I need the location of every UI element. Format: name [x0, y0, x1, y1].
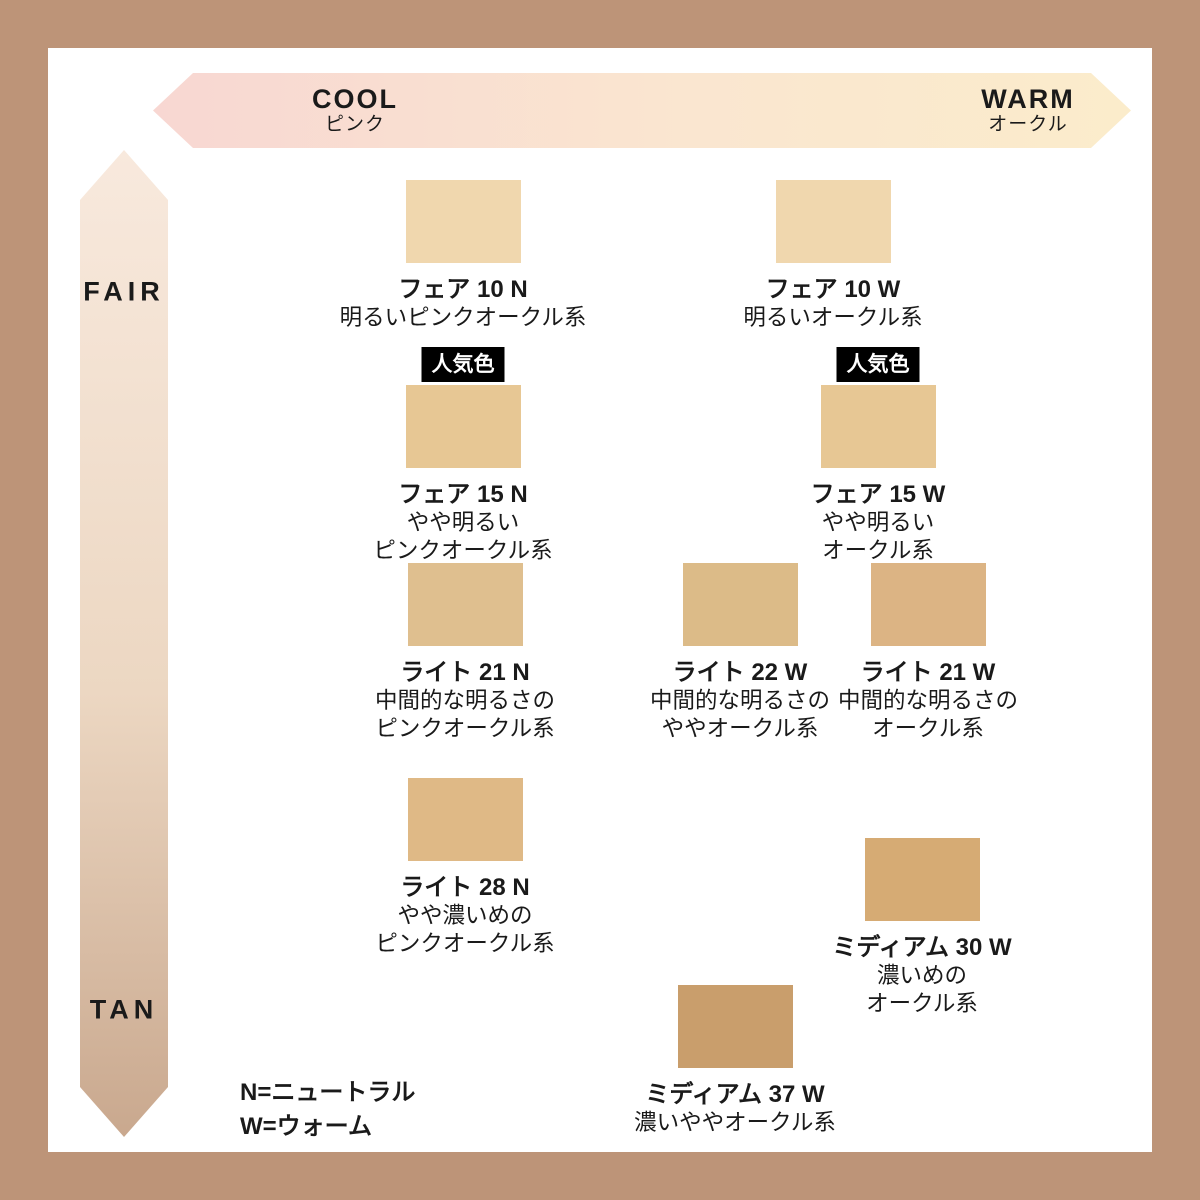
shade-swatches-layer: フェア 10 N明るいピンクオークル系フェア 10 W明るいオークル系人気色フェ… — [0, 0, 1200, 1200]
shade-name: ライト 28 N — [305, 874, 625, 902]
color-swatch — [821, 385, 936, 468]
color-swatch — [865, 838, 980, 921]
shade-description: やや濃いめのピンクオークル系 — [305, 902, 625, 958]
shade-item-8: ライト 28 Nやや濃いめのピンクオークル系 — [305, 778, 625, 958]
shade-description: 明るいピンクオークル系 — [303, 304, 623, 332]
shade-item-10: ミディアム 37 W濃いややオークル系 — [575, 985, 895, 1137]
shade-description: やや明るいオークル系 — [718, 509, 1038, 565]
legend-line-neutral: N=ニュートラル — [240, 1076, 415, 1110]
shade-chart: COOL ピンク WARM オークル FAIR TAN フェア 10 N明るいピ… — [48, 48, 1152, 1152]
shade-item-2: フェア 10 W明るいオークル系 — [673, 180, 993, 332]
color-swatch — [408, 778, 523, 861]
color-swatch — [406, 385, 521, 468]
legend-line-warm: W=ウォーム — [240, 1110, 415, 1144]
color-swatch — [776, 180, 891, 263]
shade-item-3: 人気色フェア 15 Nやや明るいピンクオークル系 — [303, 385, 623, 565]
shade-description: 明るいオークル系 — [673, 304, 993, 332]
shade-description: やや明るいピンクオークル系 — [303, 509, 623, 565]
shade-name: フェア 15 W — [718, 481, 1038, 509]
shade-description: 中間的な明るさのピンクオークル系 — [305, 687, 625, 743]
shade-description: 中間的な明るさのオークル系 — [768, 687, 1088, 743]
color-swatch — [871, 563, 986, 646]
popular-color-badge: 人気色 — [422, 347, 505, 382]
shade-item-4: 人気色フェア 15 Wやや明るいオークル系 — [718, 385, 1038, 565]
shade-item-1: フェア 10 N明るいピンクオークル系 — [303, 180, 623, 332]
shade-name: フェア 10 N — [303, 276, 623, 304]
color-swatch — [678, 985, 793, 1068]
popular-color-badge: 人気色 — [837, 347, 920, 382]
shade-name: ミディアム 30 W — [762, 934, 1082, 962]
shade-description: 濃いややオークル系 — [575, 1109, 895, 1137]
shade-name: フェア 15 N — [303, 481, 623, 509]
shade-name: ミディアム 37 W — [575, 1081, 895, 1109]
shade-name: ライト 21 W — [768, 659, 1088, 687]
shade-item-7: ライト 21 W中間的な明るさのオークル系 — [768, 563, 1088, 743]
letter-code-legend: N=ニュートラル W=ウォーム — [240, 1076, 415, 1143]
color-swatch — [408, 563, 523, 646]
shade-item-5: ライト 21 N中間的な明るさのピンクオークル系 — [305, 563, 625, 743]
shade-name: ライト 21 N — [305, 659, 625, 687]
shade-name: フェア 10 W — [673, 276, 993, 304]
color-swatch — [406, 180, 521, 263]
page-frame: COOL ピンク WARM オークル FAIR TAN フェア 10 N明るいピ… — [0, 0, 1200, 1200]
